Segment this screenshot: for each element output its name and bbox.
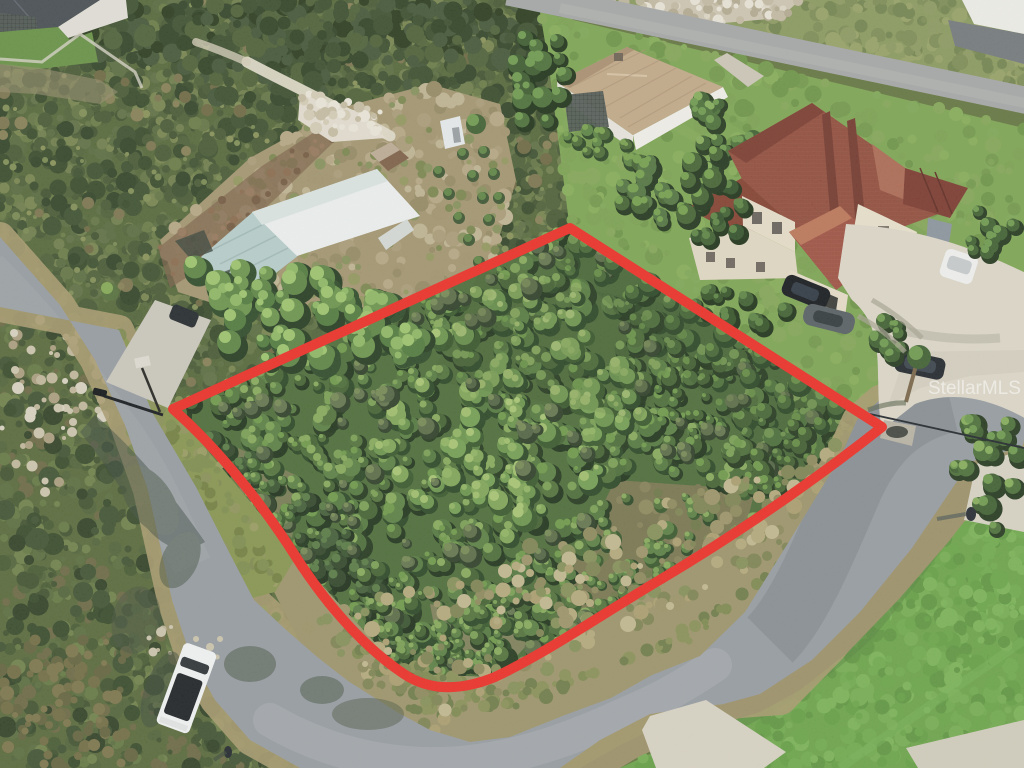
svg-text:StellarMLS: StellarMLS bbox=[928, 378, 1021, 399]
